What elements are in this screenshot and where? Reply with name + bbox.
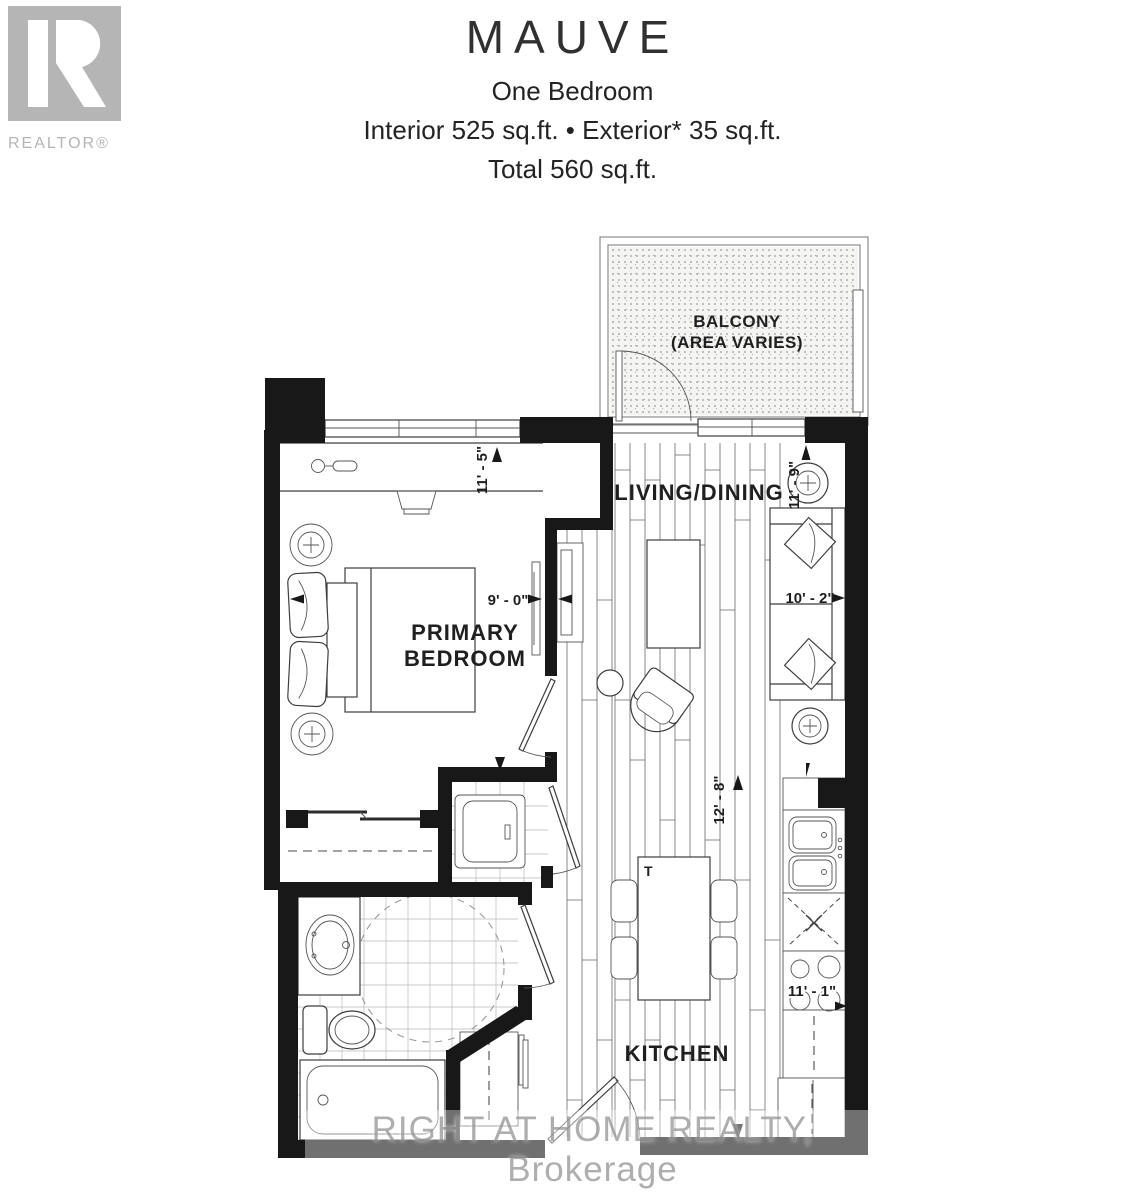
kitchen-label: KITCHEN: [625, 1041, 730, 1066]
bedroom-chair: [397, 491, 436, 514]
bedroom-sliding-closet-doors: [288, 812, 440, 851]
dining-chair: [611, 937, 637, 979]
bedroom-closet: [280, 443, 543, 514]
dining-chair: [611, 880, 637, 922]
balcony-label-1: BALCONY: [693, 312, 781, 331]
coffee-table: [647, 540, 700, 648]
dining-chair: [711, 937, 737, 979]
dim-living-width: 10' - 2": [785, 590, 834, 607]
entry-door: [548, 1077, 640, 1143]
dim-bedroom-depth: 11' - 5": [474, 446, 491, 494]
entry-closet-box: [552, 447, 600, 518]
dim-kitchen-length: 12' - 8": [711, 775, 728, 824]
floor-plan-page: REALTOR® MAUVE One Bedroom Interior 525 …: [0, 0, 1145, 1200]
primary-bedroom-label-2: BEDROOM: [404, 646, 526, 671]
closet-rod-icon: [312, 460, 358, 473]
side-table: [597, 670, 623, 696]
floor-plan-drawing: BALCONY (AREA VARIES): [0, 0, 1145, 1200]
toilet: [303, 1006, 375, 1054]
balcony-label-2: (AREA VARIES): [671, 333, 803, 352]
washer: [455, 795, 525, 868]
bathroom-door: [521, 905, 554, 988]
bedroom-door: [519, 679, 555, 757]
dim-living-depth: 11' - 9": [786, 461, 803, 509]
living-dining-label: LIVING/DINING: [614, 480, 783, 505]
balcony-rail-glass: [853, 290, 863, 412]
kitchen-counter: [778, 778, 845, 1140]
bathtub: [300, 1060, 445, 1140]
armchair: [621, 666, 696, 742]
dining-table-label: T: [644, 863, 653, 879]
laundry-door: [549, 786, 580, 874]
cooktop: [783, 951, 845, 1010]
bedroom-tv: [532, 562, 540, 655]
bathroom-vanity: [298, 897, 360, 995]
bedroom-window: [325, 420, 520, 437]
primary-bedroom-label-1: PRIMARY: [411, 620, 519, 645]
living-media-console: [557, 543, 583, 642]
living-window: [613, 419, 805, 436]
dim-bedroom-width: 9' - 0": [488, 592, 529, 609]
dim-kitchen-width: 11' - 1": [788, 983, 836, 1000]
balcony-door: [616, 351, 691, 421]
balcony: BALCONY (AREA VARIES): [600, 237, 868, 425]
dining-chair: [711, 880, 737, 922]
